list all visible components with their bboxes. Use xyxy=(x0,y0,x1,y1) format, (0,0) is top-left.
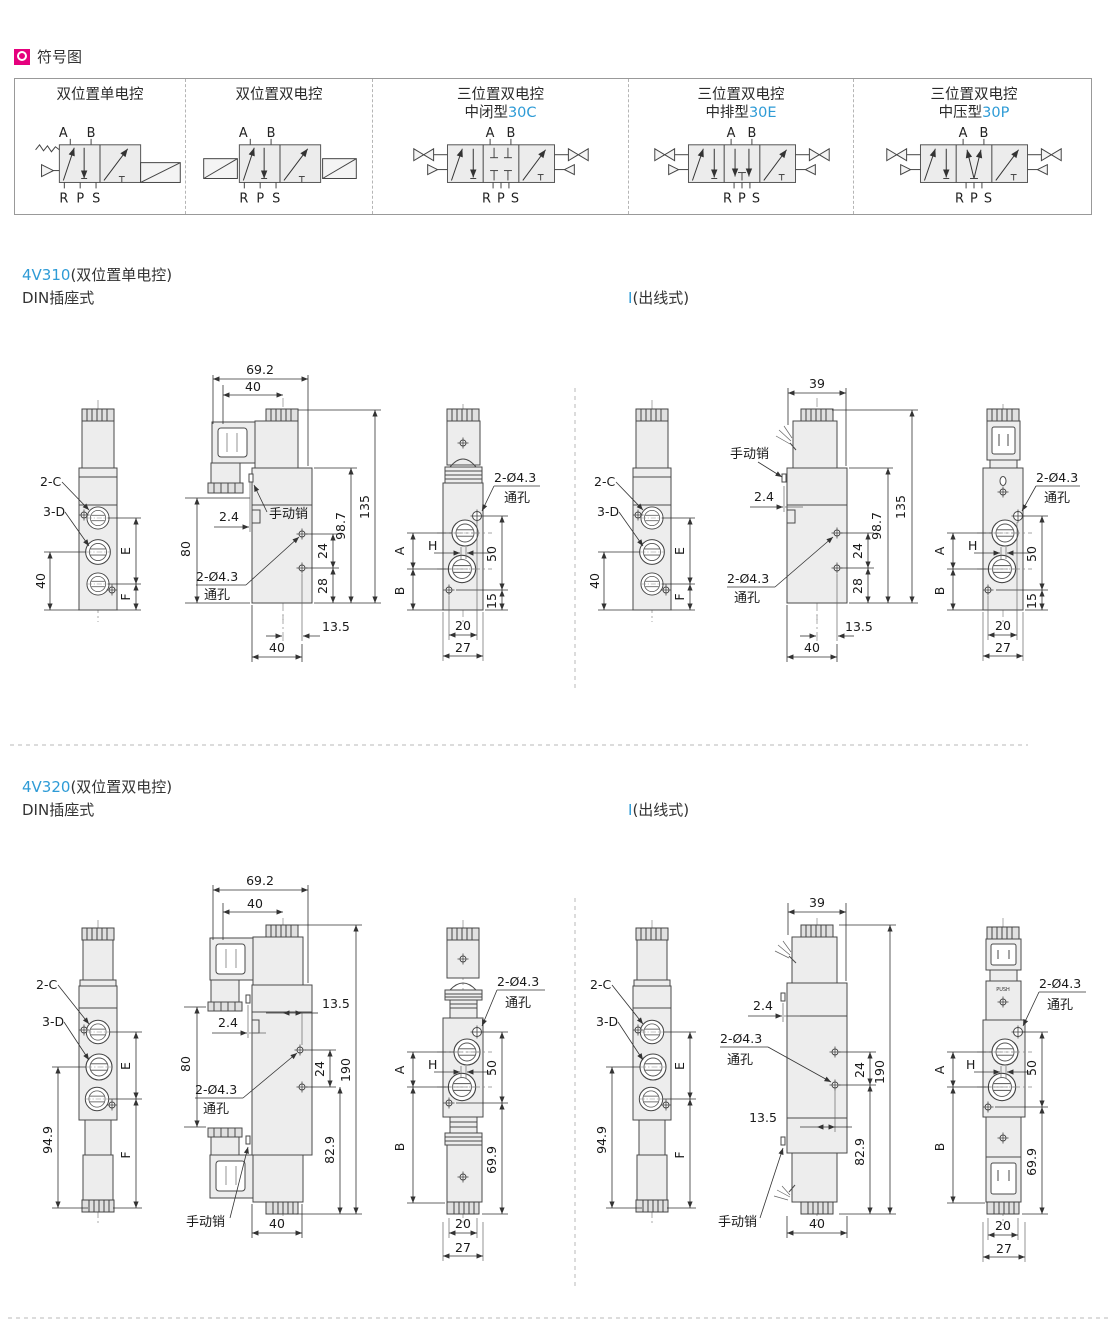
dim-label: 28 xyxy=(315,578,330,594)
valve-4v310-out-end-view: 2-Ø4.3 通孔 H A B 50 15 20 27 xyxy=(932,404,1080,661)
dim-label: 40 xyxy=(245,379,261,394)
manual-pin xyxy=(782,474,786,482)
manual-pin xyxy=(246,995,250,1003)
dim-label: B xyxy=(932,1143,947,1152)
valve-4v320-out-end-view: PUSH 2-Ø4.3 通孔 H A B xyxy=(932,918,1086,1262)
dim-label: 2.4 xyxy=(754,489,774,504)
valve-4v320-din-side-view: 69.2 40 13.5 2.4 80 2-Ø4.3 通孔 24 190 82.… xyxy=(178,873,362,1238)
dim-label: 50 xyxy=(1024,1060,1039,1076)
dim-label: H xyxy=(428,1057,437,1072)
dim-label: 15 xyxy=(484,593,499,609)
dim-label: 69.2 xyxy=(246,362,274,377)
dim-label: 24 xyxy=(850,543,865,559)
dim-label: 通孔 xyxy=(734,591,760,606)
valve-4v310-din-front-view: 2-C 3-D 40 E F xyxy=(33,400,141,622)
dim-label: 2-C xyxy=(40,474,61,489)
dim-label: 通孔 xyxy=(505,996,531,1011)
valve-4v320-din-end-view: 2-Ø4.3 通孔 H A B 50 69.9 20 27 xyxy=(392,920,545,1261)
dim-label: 27 xyxy=(455,640,471,655)
dim-label: 通孔 xyxy=(204,588,230,603)
dim-label: 69.2 xyxy=(246,873,274,888)
valve-4v310-din-end-view: 2-Ø4.3 通孔 H A B 50 15 20 27 xyxy=(392,404,540,661)
manual-pin xyxy=(249,474,253,482)
dim-label: 20 xyxy=(455,618,471,633)
dimension-drawings: 2-C 3-D 40 E F xyxy=(0,0,1110,1323)
dim-label: 2-Ø4.3 xyxy=(1039,976,1081,991)
dim-label: 98.7 xyxy=(333,512,348,540)
dim-label: F xyxy=(672,1151,687,1158)
valve-4v320-out-side-view: 39 2.4 2-Ø4.3 通孔 24 190 13.5 82.9 手动销 40 xyxy=(718,895,896,1238)
valve-4v310-out-front-view: 2-C 3-D 40 E F xyxy=(587,400,695,622)
dim-label: 3-D xyxy=(42,1014,64,1029)
dim-label: 13.5 xyxy=(845,619,873,634)
dim-label: 2-C xyxy=(590,977,611,992)
dim-label: 通孔 xyxy=(1047,998,1073,1013)
valve-4v320-din-front-view: 2-C 3-D 94.9 E F xyxy=(36,920,142,1225)
dim-label: A xyxy=(392,546,407,555)
dim-label: 3-D xyxy=(43,504,65,519)
dim-label: 2-Ø4.3 xyxy=(195,1082,237,1097)
manual-pin-label: 手动销 xyxy=(730,447,769,462)
dim-label: 40 xyxy=(247,896,263,911)
dim-label: 通孔 xyxy=(727,1053,753,1068)
dim-label: 94.9 xyxy=(40,1126,55,1154)
dim-label: A xyxy=(932,1065,947,1074)
valve-4v310-din-side-view: 69.2 40 80 2.4 手动销 2-Ø4.3 通孔 24 28 98.7 xyxy=(178,362,381,662)
dim-label: E xyxy=(118,547,133,555)
dim-label: 13.5 xyxy=(322,996,350,1011)
dim-label: E xyxy=(118,1062,133,1070)
dim-label: F xyxy=(672,593,687,600)
dim-label: 40 xyxy=(809,1216,825,1231)
dim-label: 20 xyxy=(455,1216,471,1231)
dim-label: B xyxy=(392,587,407,596)
manual-pin xyxy=(781,1137,785,1145)
valve-4v320-out-front-view: 2-C 3-D 94.9 E F xyxy=(590,920,696,1225)
dim-label: 20 xyxy=(995,618,1011,633)
dim-label: 通孔 xyxy=(504,491,530,506)
dim-label: 2-C xyxy=(36,977,57,992)
dim-label: 20 xyxy=(995,1218,1011,1233)
dim-label: 39 xyxy=(809,376,825,391)
dim-label: 80 xyxy=(178,1056,193,1072)
dim-label: 13.5 xyxy=(322,619,350,634)
dim-label: 2-Ø4.3 xyxy=(727,571,769,586)
dim-label: E xyxy=(672,1062,687,1070)
dim-label: A xyxy=(392,1065,407,1074)
dim-label: 3-D xyxy=(597,504,619,519)
dim-label: 2.4 xyxy=(218,1015,238,1030)
dim-label: 通孔 xyxy=(203,1102,229,1117)
push-label: PUSH xyxy=(996,987,1010,993)
dim-label: 40 xyxy=(269,1216,285,1231)
dim-label: 50 xyxy=(484,1060,499,1076)
dim-label: H xyxy=(428,538,437,553)
dim-label: 69.9 xyxy=(1024,1148,1039,1176)
manual-pin xyxy=(246,1136,250,1144)
catalog-page: 符号图 双位置单电控 A B R xyxy=(0,0,1110,1323)
dim-label: 50 xyxy=(484,546,499,562)
dim-label: E xyxy=(672,547,687,555)
dim-label: 28 xyxy=(850,578,865,594)
dim-label: B xyxy=(392,1143,407,1152)
dim-label: 2-Ø4.3 xyxy=(196,569,238,584)
dim-label: 27 xyxy=(995,640,1011,655)
dim-label: 2.4 xyxy=(219,509,239,524)
dim-label: 2-Ø4.3 xyxy=(494,470,536,485)
dim-label: 2-Ø4.3 xyxy=(497,974,539,989)
dim-label: 40 xyxy=(587,573,602,589)
valve-4v310-out-side-view: 39 手动销 2.4 2-Ø4.3 通孔 24 28 98.7 135 13.5 xyxy=(727,376,918,662)
dim-label: 50 xyxy=(1024,546,1039,562)
dim-label: 13.5 xyxy=(749,1110,777,1125)
dim-label: B xyxy=(932,587,947,596)
dim-label: 40 xyxy=(33,573,48,589)
dim-label: 24 xyxy=(852,1062,867,1078)
dim-label: 3-D xyxy=(596,1014,618,1029)
dim-label: 190 xyxy=(338,1058,353,1082)
dim-label: 15 xyxy=(1024,593,1039,609)
dim-label: A xyxy=(932,546,947,555)
dim-label: 39 xyxy=(809,895,825,910)
dim-label: 2-Ø4.3 xyxy=(720,1031,762,1046)
dim-label: F xyxy=(118,1151,133,1158)
dim-label: 94.9 xyxy=(594,1126,609,1154)
dim-label: 2-C xyxy=(594,474,615,489)
dim-label: 98.7 xyxy=(869,512,884,540)
dim-label: 40 xyxy=(804,640,820,655)
dim-label: 69.9 xyxy=(484,1146,499,1174)
manual-pin-label: 手动销 xyxy=(269,507,308,522)
dim-label: 82.9 xyxy=(322,1136,337,1164)
dim-label: H xyxy=(968,538,977,553)
dim-label: 27 xyxy=(996,1241,1012,1256)
dim-label: 80 xyxy=(178,541,193,557)
dim-label: 2.4 xyxy=(753,998,773,1013)
dim-label: 135 xyxy=(357,495,372,519)
dim-label: 24 xyxy=(312,1061,327,1077)
dim-label: 24 xyxy=(315,543,330,559)
dim-label: 2-Ø4.3 xyxy=(1036,470,1078,485)
manual-pin xyxy=(781,993,785,1001)
manual-pin-label: 手动销 xyxy=(186,1215,225,1230)
dim-label: 82.9 xyxy=(852,1138,867,1166)
dim-label: F xyxy=(118,593,133,600)
dim-label: 135 xyxy=(893,495,908,519)
manual-pin-label: 手动销 xyxy=(718,1215,757,1230)
dim-label: H xyxy=(966,1057,975,1072)
dim-label: 40 xyxy=(269,640,285,655)
dim-label: 27 xyxy=(455,1240,471,1255)
dim-label: 通孔 xyxy=(1044,491,1070,506)
dim-label: 190 xyxy=(872,1060,887,1084)
